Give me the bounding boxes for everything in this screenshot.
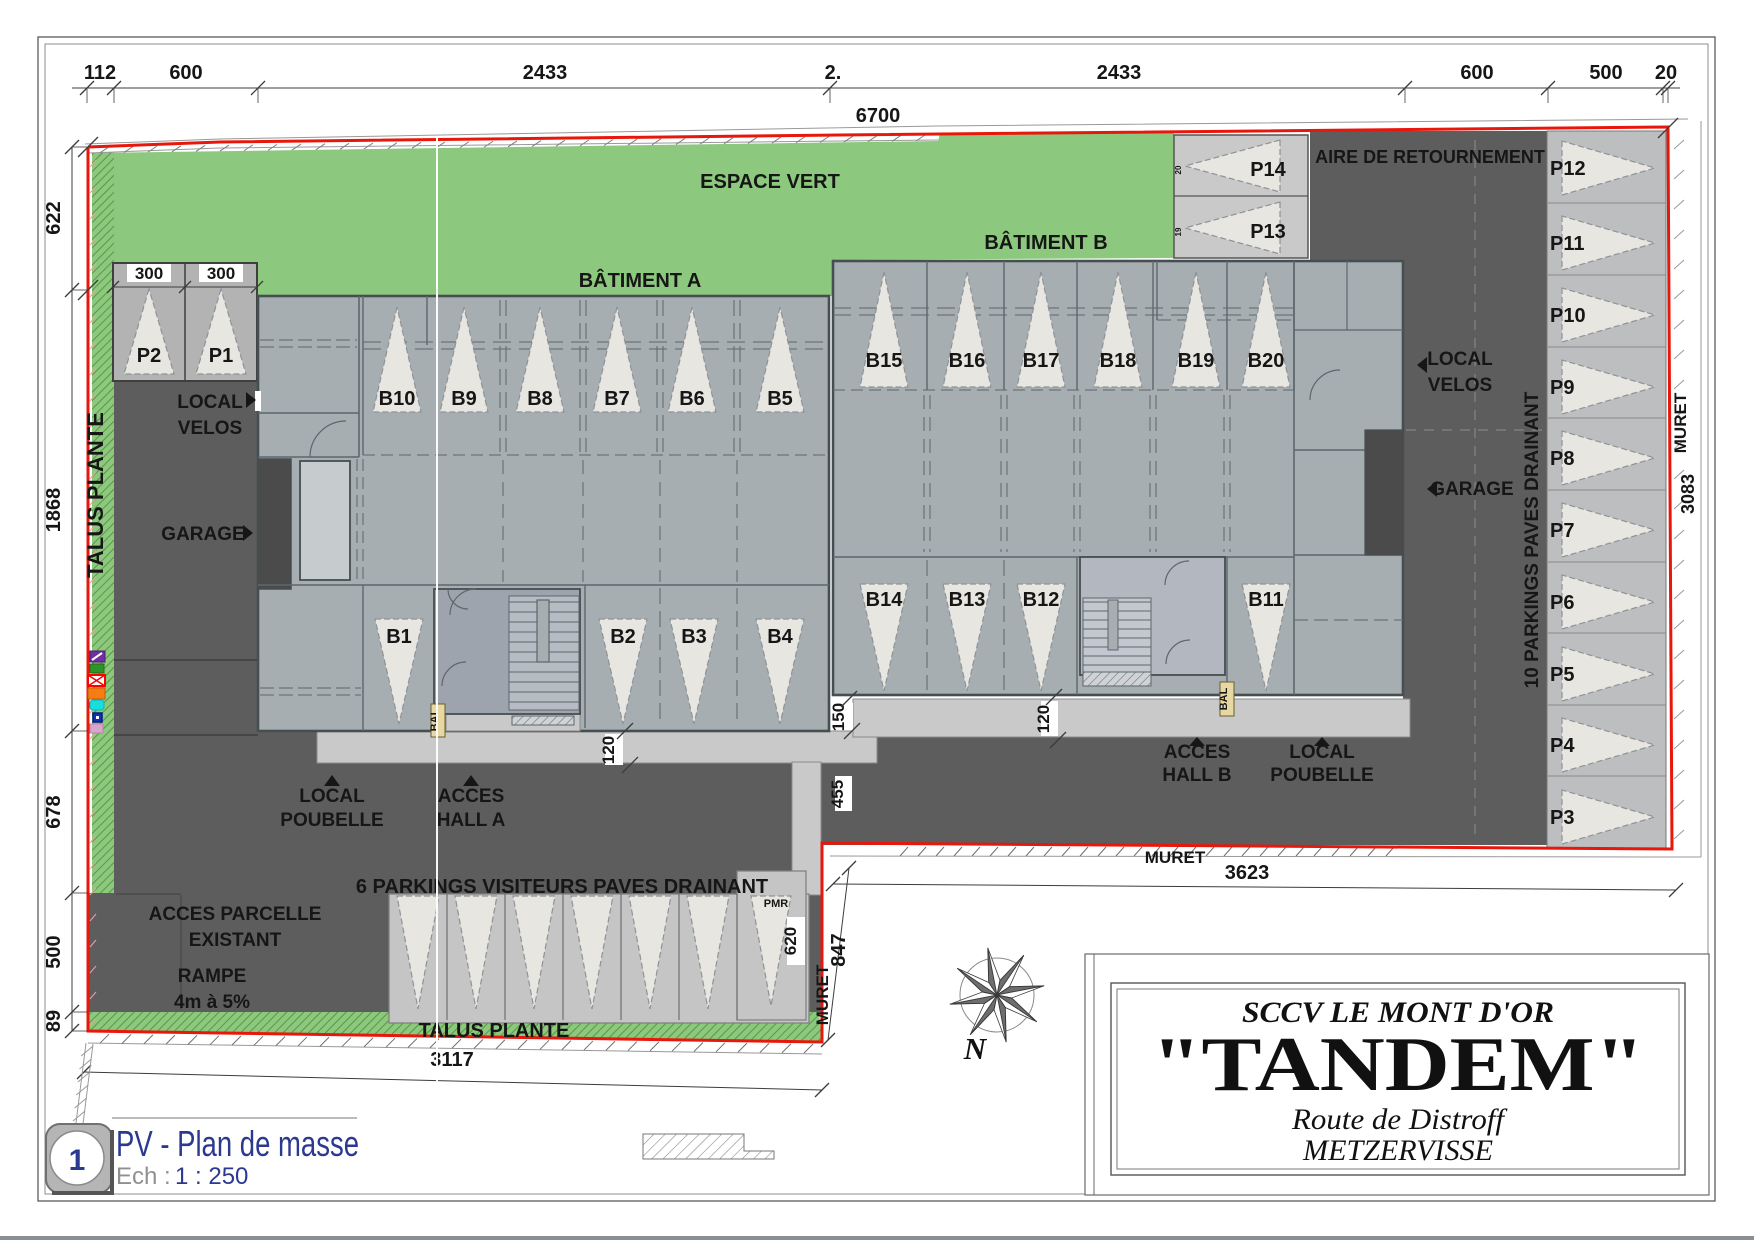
svg-text:TALUS PLANTE: TALUS PLANTE <box>83 412 108 578</box>
svg-text:P3: P3 <box>1550 807 1574 829</box>
svg-text:847: 847 <box>828 933 850 966</box>
svg-text:20: 20 <box>1655 62 1677 84</box>
svg-text:B19: B19 <box>1178 350 1215 372</box>
svg-text:HALL A: HALL A <box>437 810 506 831</box>
svg-text:P1: P1 <box>209 345 233 367</box>
svg-text:89: 89 <box>43 1010 65 1032</box>
svg-text:P7: P7 <box>1550 520 1574 542</box>
svg-text:600: 600 <box>169 62 202 84</box>
svg-text:BÂTIMENT A: BÂTIMENT A <box>579 268 702 292</box>
svg-text:VELOS: VELOS <box>178 418 242 439</box>
svg-text:B4: B4 <box>767 626 793 648</box>
svg-text:2433: 2433 <box>523 62 568 84</box>
svg-text:B7: B7 <box>604 388 630 410</box>
svg-text:B1: B1 <box>386 626 412 648</box>
svg-text:2433: 2433 <box>1097 62 1142 84</box>
svg-text:PV - Plan de masse: PV - Plan de masse <box>116 1123 359 1164</box>
svg-text:HALL B: HALL B <box>1162 765 1231 786</box>
svg-text:EXISTANT: EXISTANT <box>189 930 282 951</box>
svg-text:"TANDEM": "TANDEM" <box>1152 1021 1645 1107</box>
svg-text:GARAGE: GARAGE <box>1430 479 1513 500</box>
svg-text:P5: P5 <box>1550 664 1574 686</box>
svg-text:VELOS: VELOS <box>1428 375 1492 396</box>
svg-text:LOCAL: LOCAL <box>299 786 365 807</box>
svg-text:P2: P2 <box>137 345 161 367</box>
svg-text:150: 150 <box>829 703 848 731</box>
svg-text:2.: 2. <box>825 62 842 84</box>
svg-text:112: 112 <box>84 62 116 84</box>
svg-text:B3: B3 <box>681 626 707 648</box>
svg-text:B11: B11 <box>1248 589 1284 611</box>
svg-text:B17: B17 <box>1023 350 1060 372</box>
svg-text:B14: B14 <box>866 589 904 611</box>
svg-text:B16: B16 <box>949 350 986 372</box>
svg-text:B5: B5 <box>767 388 793 410</box>
svg-text:19: 19 <box>1174 227 1183 236</box>
svg-text:Ech :: Ech : <box>116 1163 171 1190</box>
svg-text:20: 20 <box>1174 165 1183 174</box>
svg-text:LOCAL: LOCAL <box>177 392 243 413</box>
svg-text:GARAGE: GARAGE <box>161 524 244 545</box>
svg-text:1: 1 <box>69 1144 86 1177</box>
svg-text:500: 500 <box>1589 62 1622 84</box>
svg-text:P4: P4 <box>1550 735 1575 757</box>
svg-text:BAL: BAL <box>429 708 441 731</box>
svg-text:P8: P8 <box>1550 448 1574 470</box>
svg-text:P13: P13 <box>1250 221 1286 243</box>
svg-text:B18: B18 <box>1100 350 1137 372</box>
svg-text:500: 500 <box>43 935 65 968</box>
svg-text:620: 620 <box>781 927 800 955</box>
svg-text:P11: P11 <box>1550 233 1584 255</box>
svg-text:RAMPE: RAMPE <box>178 966 247 987</box>
svg-text:600: 600 <box>1460 62 1493 84</box>
svg-text:B2: B2 <box>610 626 636 648</box>
svg-text:BÂTIMENT B: BÂTIMENT B <box>984 230 1107 254</box>
svg-text:300: 300 <box>207 264 235 283</box>
svg-text:622: 622 <box>43 201 65 234</box>
svg-text:B12: B12 <box>1023 589 1060 611</box>
svg-text:B10: B10 <box>379 388 416 410</box>
svg-text:455: 455 <box>828 780 847 808</box>
svg-text:B9: B9 <box>451 388 477 410</box>
svg-text:B6: B6 <box>679 388 705 410</box>
svg-text:1 : 250: 1 : 250 <box>175 1163 248 1190</box>
svg-text:B8: B8 <box>527 388 553 410</box>
svg-text:ACCES: ACCES <box>438 786 505 807</box>
svg-text:P12: P12 <box>1550 158 1586 180</box>
svg-text:1868: 1868 <box>43 488 65 533</box>
svg-text:BAL: BAL <box>1218 687 1230 710</box>
svg-text:4m à 5%: 4m à 5% <box>174 992 250 1013</box>
svg-text:P10: P10 <box>1550 305 1586 327</box>
svg-text:P14: P14 <box>1250 159 1286 181</box>
svg-text:MURET: MURET <box>1671 392 1690 453</box>
svg-text:MURET: MURET <box>1145 848 1206 867</box>
svg-text:6 PARKINGS VISITEURS PAVES DRA: 6 PARKINGS VISITEURS PAVES DRAINANT <box>356 876 768 898</box>
svg-text:B15: B15 <box>866 350 903 372</box>
svg-text:P9: P9 <box>1550 377 1574 399</box>
svg-text:120: 120 <box>599 736 618 764</box>
svg-text:Route de Distroff: Route de Distroff <box>1291 1103 1508 1136</box>
svg-text:300: 300 <box>135 264 163 283</box>
svg-text:ACCES PARCELLE: ACCES PARCELLE <box>149 904 322 925</box>
svg-text:N: N <box>963 1031 988 1066</box>
svg-text:120: 120 <box>1034 705 1053 733</box>
svg-text:6700: 6700 <box>856 105 901 127</box>
svg-text:B13: B13 <box>949 589 986 611</box>
svg-text:TALUS PLANTE: TALUS PLANTE <box>419 1020 570 1042</box>
svg-text:3083: 3083 <box>1678 474 1698 514</box>
svg-text:AIRE DE RETOURNEMENT: AIRE DE RETOURNEMENT <box>1315 147 1545 167</box>
svg-text:METZERVISSE: METZERVISSE <box>1302 1134 1493 1167</box>
svg-text:POUBELLE: POUBELLE <box>280 810 383 831</box>
svg-text:MURET: MURET <box>813 964 832 1025</box>
svg-text:ESPACE VERT: ESPACE VERT <box>700 171 840 193</box>
svg-text:POUBELLE: POUBELLE <box>1270 765 1373 786</box>
svg-text:678: 678 <box>43 795 65 828</box>
svg-text:3623: 3623 <box>1225 862 1270 884</box>
svg-text:B20: B20 <box>1248 350 1285 372</box>
svg-text:LOCAL: LOCAL <box>1427 349 1493 370</box>
svg-text:PMR: PMR <box>764 898 789 910</box>
svg-text:10 PARKINGS PAVES DRAINANT: 10 PARKINGS PAVES DRAINANT <box>1522 391 1543 688</box>
svg-text:P6: P6 <box>1550 592 1574 614</box>
